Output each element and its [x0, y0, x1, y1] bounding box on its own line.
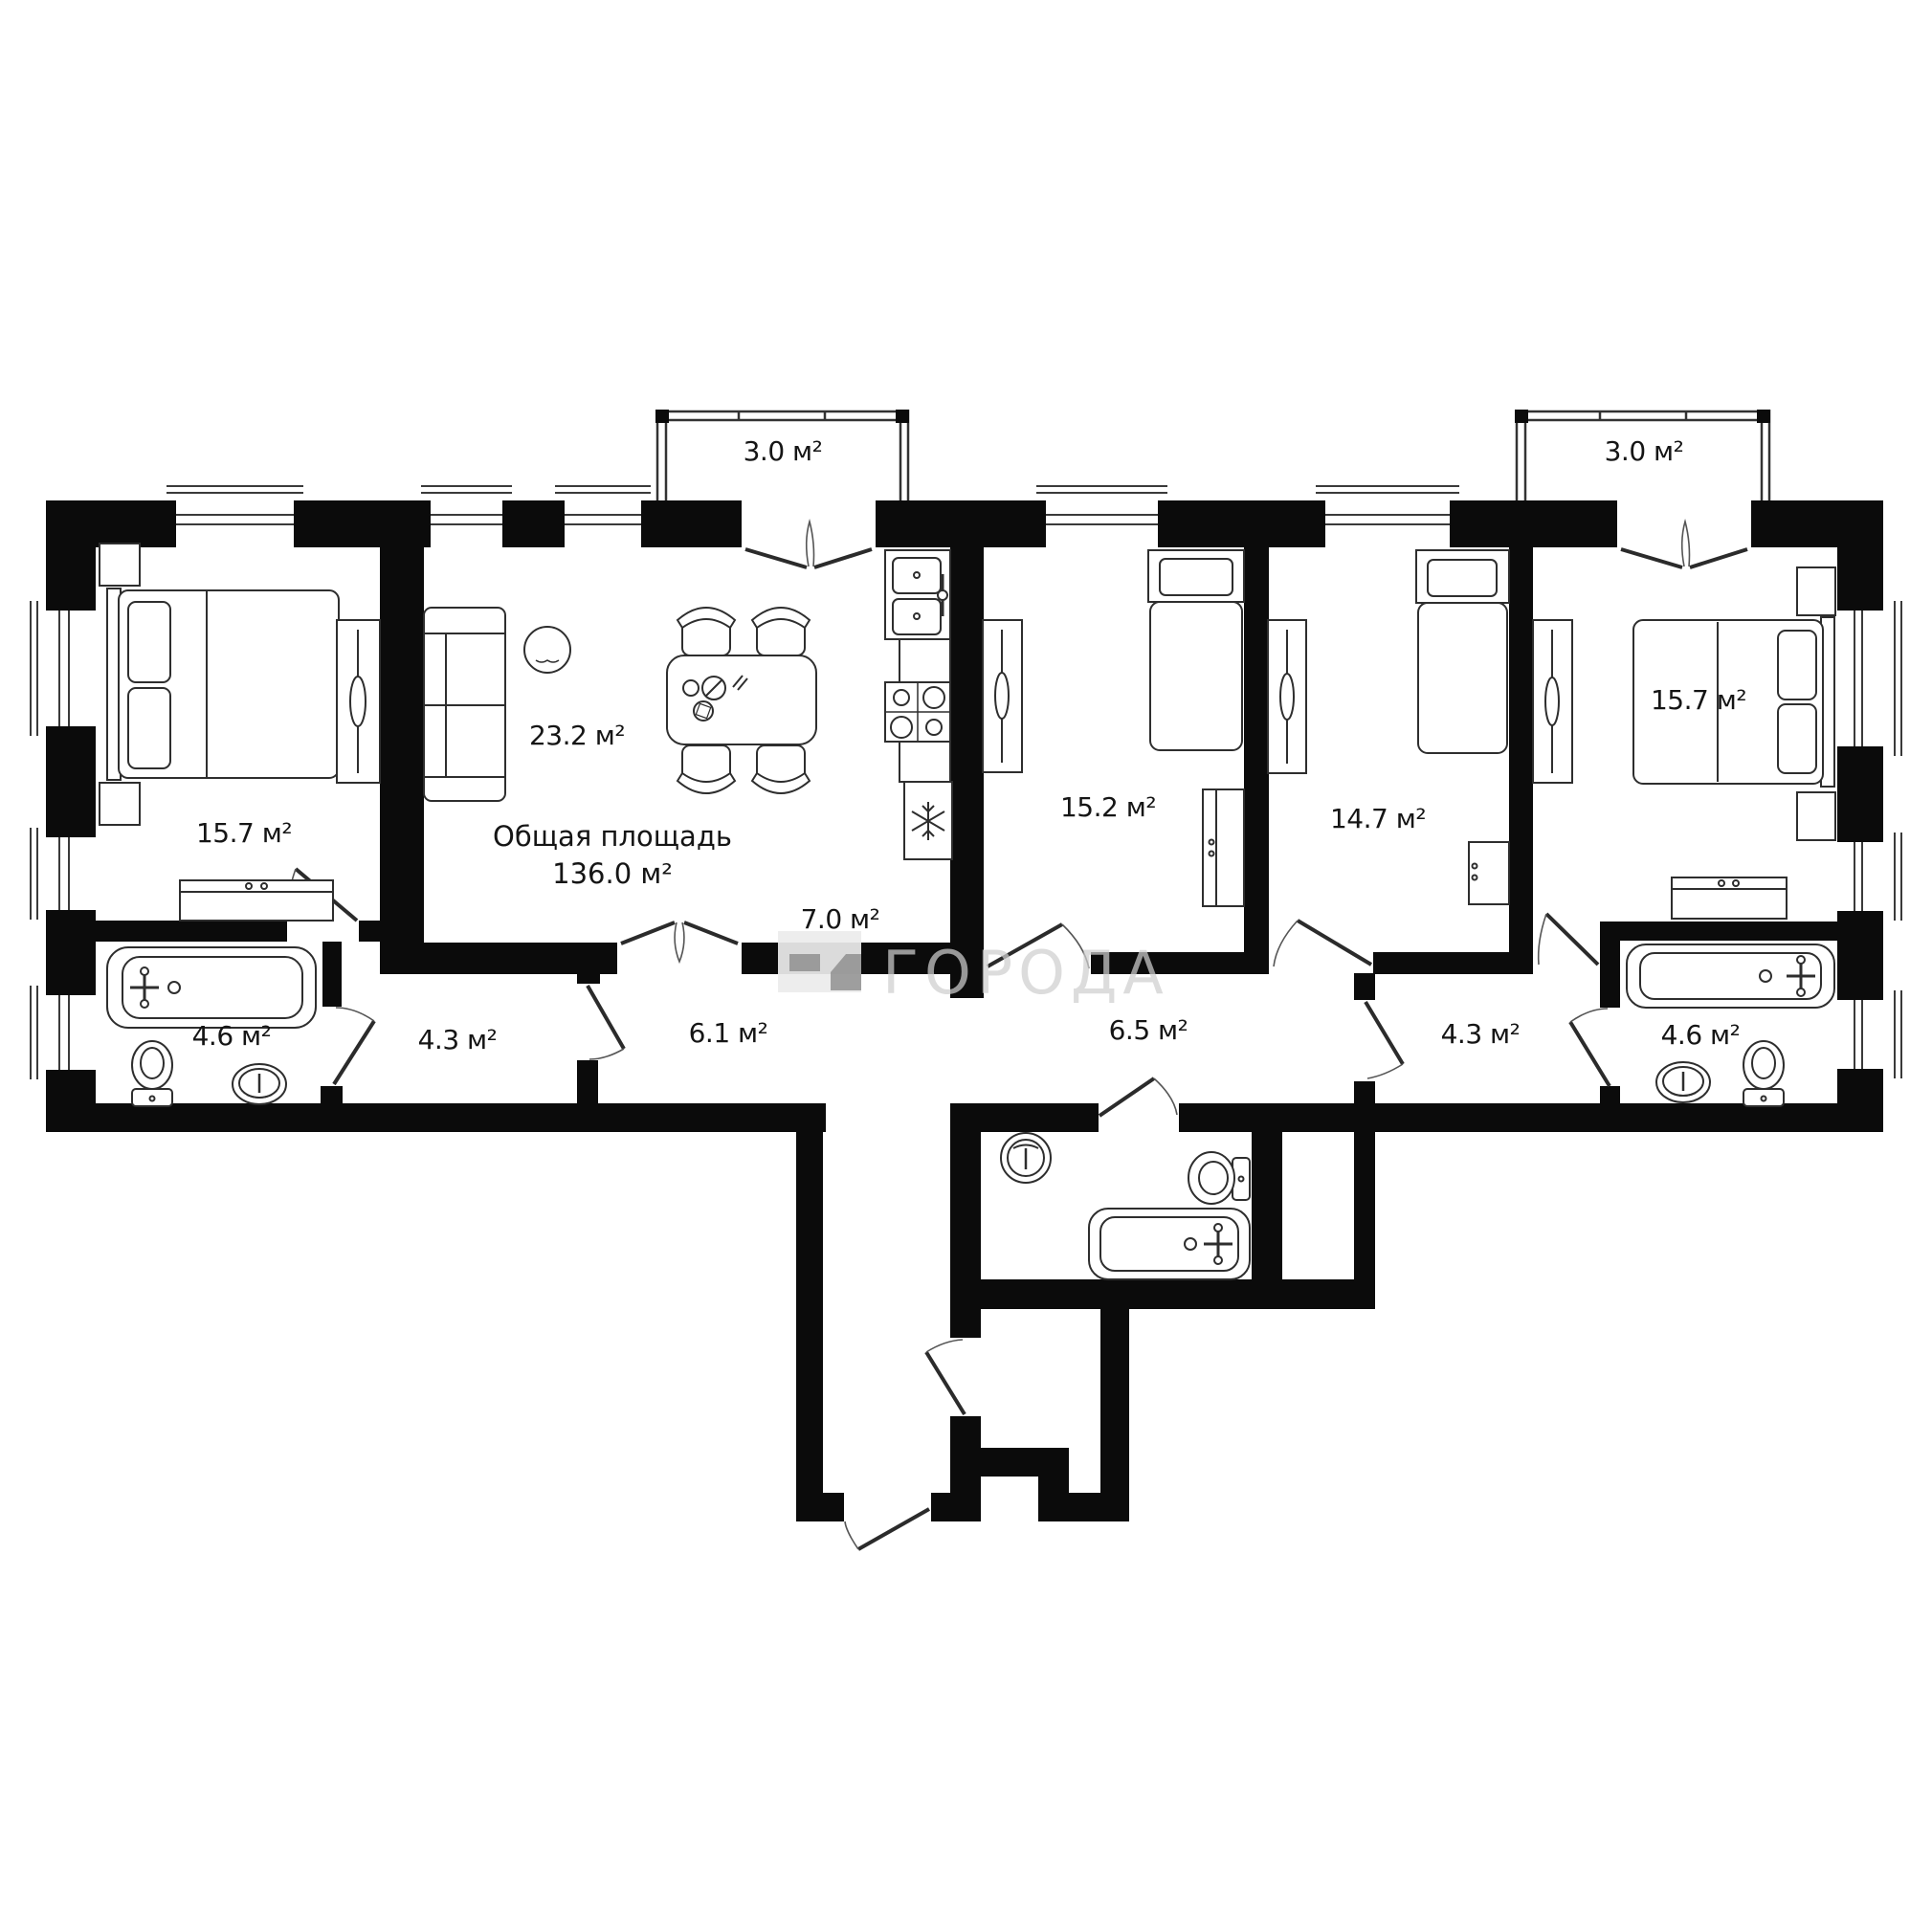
toilet-icon	[132, 1041, 172, 1106]
door-arc	[336, 1008, 374, 1021]
chair-icon	[752, 608, 810, 655]
bathroom-left-door	[334, 1021, 374, 1084]
window	[31, 601, 69, 736]
living-area-label: 23.2 м²	[529, 720, 625, 751]
window	[31, 828, 69, 920]
floor-lamp-icon	[524, 627, 570, 673]
balcony-left-area-label: 3.0 м²	[744, 435, 823, 467]
brand-building-icon	[778, 931, 861, 992]
pillow-icon	[1778, 631, 1816, 700]
window	[1316, 486, 1459, 524]
watermark: ГОРОДА	[778, 931, 1169, 1008]
pillow-icon	[128, 688, 170, 768]
dining-table-icon	[667, 655, 816, 744]
sofa-icon	[424, 608, 505, 801]
window	[555, 486, 651, 524]
chair-icon	[677, 608, 735, 655]
kitchen-counter	[899, 742, 950, 782]
bedroom-2-area-label: 15.2 м²	[1060, 791, 1156, 823]
room-middle-bathroom	[1001, 1133, 1250, 1279]
single-bed-icon	[1416, 550, 1509, 753]
door-arc	[845, 1521, 858, 1549]
window	[31, 986, 69, 1079]
nightstand-icon	[1797, 567, 1835, 615]
bathtub-icon	[107, 947, 316, 1028]
room-kitchen	[885, 550, 952, 859]
bedroom-3-door	[1298, 921, 1371, 965]
toilet-icon	[1188, 1152, 1250, 1204]
bedroom-left-area-label: 15.7 м²	[196, 817, 292, 849]
toilet-icon	[1743, 1041, 1784, 1106]
bathtub-icon	[1627, 944, 1834, 1008]
corridor-left-area-label: 6.1 м²	[689, 1017, 768, 1049]
dresser-icon	[180, 880, 333, 921]
pillow-icon	[1160, 559, 1232, 595]
hallway-right-door	[1366, 1002, 1403, 1064]
room-bedroom-3	[1268, 550, 1509, 904]
hallway-left-area-label: 4.3 м²	[418, 1024, 498, 1055]
door-arc	[1154, 1078, 1177, 1115]
room-living	[424, 608, 816, 801]
bathroom-left-area-label: 4.6 м²	[192, 1020, 272, 1052]
door-arc	[1274, 921, 1298, 966]
nightstand-icon	[100, 783, 140, 825]
total-area-label: Общая площадь	[493, 820, 732, 853]
fridge-icon	[904, 782, 952, 859]
door-arc	[807, 522, 814, 566]
door-arc	[1570, 1009, 1608, 1022]
wash-basin-icon	[1001, 1133, 1051, 1183]
door-arc	[1539, 914, 1546, 965]
bedroom-right-area-label: 15.7 м²	[1651, 684, 1746, 716]
wardrobe-icon	[983, 620, 1022, 772]
room-bedroom-right	[1533, 567, 1835, 919]
bedroom-3-area-label: 14.7 м²	[1330, 803, 1426, 834]
corridor-right-area-label: 6.5 м²	[1109, 1014, 1188, 1046]
vestibule-door	[926, 1352, 965, 1414]
single-bed-icon	[1148, 550, 1244, 750]
pillow-icon	[1778, 704, 1816, 773]
wardrobe-icon	[337, 620, 380, 783]
chair-icon	[752, 745, 810, 793]
bathtub-icon	[1089, 1209, 1250, 1279]
kitchen-counter	[899, 639, 950, 682]
kitchen-area-label: 7.0 м²	[801, 903, 880, 935]
pillow-icon	[128, 602, 170, 682]
bathroom-right-area-label: 4.6 м²	[1661, 1019, 1741, 1051]
room-bedroom-2	[983, 550, 1244, 906]
bedroom-right-door	[1546, 914, 1598, 965]
nightstand-icon	[1797, 792, 1835, 840]
balcony-right-area-label: 3.0 м²	[1605, 435, 1684, 467]
double-bed-icon	[107, 588, 339, 780]
door-arc	[589, 1049, 624, 1059]
wardrobe-icon	[1268, 620, 1306, 773]
nightstand-icon	[100, 544, 140, 586]
chair-icon	[677, 745, 735, 793]
door-arc	[1367, 1064, 1403, 1078]
total-area-annotation: Общая площадь 136.0 м²	[493, 820, 732, 890]
window	[1854, 833, 1901, 921]
door-arc	[926, 1340, 963, 1352]
watermark-text: ГОРОДА	[882, 938, 1169, 1008]
room-bedroom-left	[100, 544, 380, 921]
window	[421, 486, 512, 524]
stove-icon	[885, 682, 950, 742]
wash-basin-icon	[1656, 1062, 1710, 1102]
bathroom-right-door	[1570, 1022, 1610, 1086]
hallway-left-door	[588, 986, 624, 1049]
window	[1854, 601, 1901, 756]
cabinet-icon	[1469, 842, 1509, 904]
hallway-right-area-label: 4.3 м²	[1441, 1018, 1521, 1050]
floor-plan-page: 3.0 м² 3.0 м² 15.7 м² 23.2 м² 7.0 м² 15.…	[0, 0, 1932, 1932]
dresser-icon	[1672, 877, 1787, 919]
living-double-door	[621, 922, 738, 944]
floor-plan-drawing: 3.0 м² 3.0 м² 15.7 м² 23.2 м² 7.0 м² 15.…	[0, 0, 1932, 1932]
pillow-icon	[1428, 560, 1497, 596]
kitchen-sink-icon	[885, 550, 950, 639]
window	[1854, 990, 1901, 1078]
door-arc	[1682, 522, 1690, 566]
entrance-door	[858, 1509, 929, 1549]
window	[167, 486, 303, 524]
total-area-value: 136.0 м²	[552, 857, 673, 890]
window	[1036, 486, 1167, 524]
middle-bathroom-door	[1099, 1078, 1154, 1116]
wash-basin-icon	[233, 1064, 286, 1104]
door-arc	[675, 922, 684, 962]
wardrobe-icon	[1533, 620, 1572, 783]
cabinet-icon	[1203, 789, 1244, 906]
